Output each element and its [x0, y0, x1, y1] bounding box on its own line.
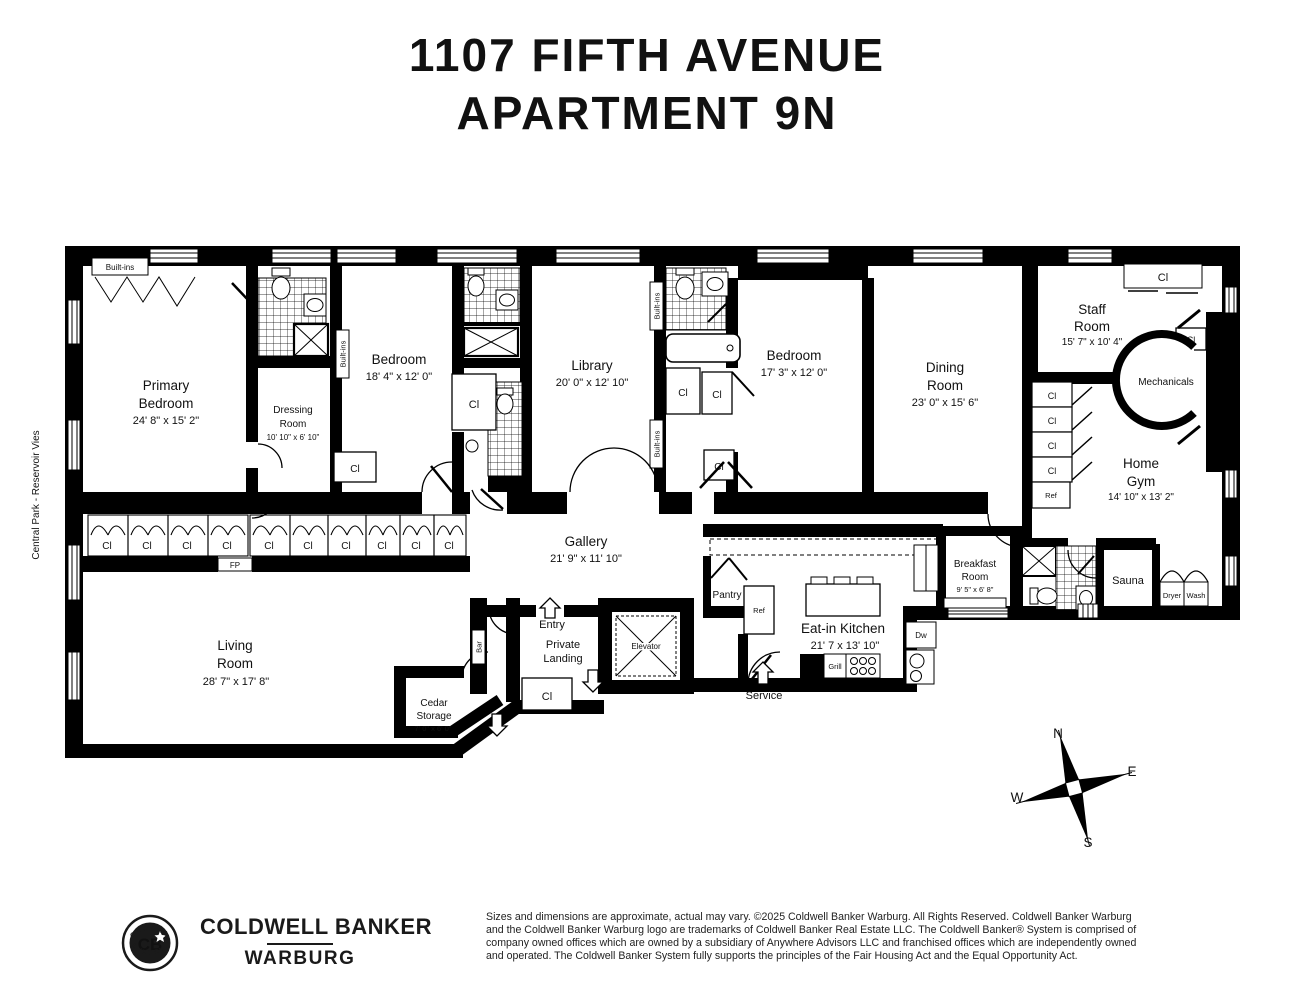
gallery-label: Gallery [565, 534, 608, 549]
floorplan-drawing: Cl Cl Cl Cl Cl Cl Cl Cl Cl Cl FP Cl Cl C… [0, 0, 1294, 1000]
dressing-room-dims: 10' 10" x 6' 10" [267, 433, 320, 442]
closet-label: Cl [341, 541, 350, 552]
compass-n-label: N [1053, 726, 1063, 741]
closet-label: Cl [678, 388, 687, 399]
breakfast-room-label: Breakfast [954, 559, 996, 570]
toilet-icon [272, 268, 290, 299]
closet-label: Cl [222, 541, 231, 552]
brand-line2: WARBURG [200, 948, 400, 970]
bar-nook: Bar [472, 630, 485, 664]
legal-disclaimer: Sizes and dimensions are approximate, ac… [486, 911, 1144, 963]
home-gym-label: Home [1123, 456, 1159, 471]
bedroom2-label: Bedroom [767, 348, 822, 363]
kitchen-dims: 21' 7 x 13' 10" [811, 640, 880, 652]
closet-label: Cl [712, 390, 721, 401]
ref-label: Ref [753, 606, 766, 615]
closet-label: Cl [1158, 272, 1168, 284]
toilet-icon [676, 268, 694, 299]
closet-label: Cl [264, 541, 273, 552]
breakfast-bench [944, 598, 1006, 608]
mechanicals-label: Mechanicals [1138, 377, 1194, 388]
closet-label: Cl [469, 399, 479, 411]
primary-bedroom-label: Bedroom [139, 396, 194, 411]
sink-icon [304, 294, 326, 316]
dressing-room-label: Room [280, 419, 307, 430]
sink-icon [496, 290, 518, 310]
kitchen-island [806, 577, 880, 616]
closet-label: Cl [102, 541, 111, 552]
kitchen-sink-icon [906, 650, 934, 684]
closet-label: Cl [350, 464, 359, 475]
dryer-label: Dryer [1163, 591, 1182, 600]
bedroom1-dims: 18' 4" x 12' 0" [366, 371, 433, 383]
ref-label: Ref [1045, 491, 1058, 500]
cedar-storage-label: Cedar [420, 698, 448, 709]
staff-room-dims: 15' 7" x 10' 4" [1062, 337, 1123, 348]
closet-label: Cl [1048, 391, 1057, 401]
cooktop-icon [846, 654, 880, 678]
dining-room-label: Room [927, 378, 963, 393]
refrigerator: Ref [744, 586, 774, 634]
built-ins-label: Built-ins [339, 340, 348, 367]
closet-label: Cl [444, 541, 453, 552]
toilet-icon [468, 268, 484, 296]
brand-divider [267, 943, 333, 945]
fireplace-label: FP [230, 561, 240, 570]
bedroom1-label: Bedroom [372, 352, 427, 367]
grill-label: Grill [828, 662, 842, 671]
elevator: Elevator [612, 612, 680, 680]
breakfast-room-dims: 9' 5" x 6' 8" [957, 585, 994, 594]
bathtub-icon [666, 334, 740, 362]
living-room-dims: 28' 7" x 17' 8" [203, 676, 270, 688]
closet-label: Cl [303, 541, 312, 552]
private-landing-label: Private [546, 639, 580, 651]
shower-icon [1022, 546, 1056, 576]
dishwasher: Dw [906, 622, 936, 648]
built-ins-label: Built-ins [653, 292, 662, 319]
primary-bedroom-label: Primary [143, 378, 190, 393]
dining-room-dims: 23' 0" x 15' 6" [912, 397, 979, 409]
dining-room-label: Dining [926, 360, 964, 375]
bar-label: Bar [475, 641, 484, 653]
library-label: Library [571, 358, 613, 373]
entry-label: Entry [539, 619, 565, 631]
living-room-label: Living [217, 638, 252, 653]
grill: Grill [824, 654, 846, 678]
toilet-icon [497, 388, 513, 414]
closet-label: Cl [542, 691, 552, 703]
floorplan-page: 1107 FIFTH AVENUE APARTMENT 9N [0, 0, 1294, 1000]
built-ins-label: Built-ins [106, 263, 134, 272]
laundry: Dryer Wash [1160, 571, 1208, 606]
sink-icon [702, 272, 728, 296]
gallery-dims: 21' 9" x 11' 10" [550, 553, 622, 565]
compass-s-label: S [1083, 835, 1092, 850]
dressing-room-label: Dressing [273, 405, 312, 416]
brand-wordmark: COLDWELL BANKER WARBURG [200, 914, 400, 970]
pantry-label: Pantry [713, 590, 742, 601]
sauna-step [1078, 604, 1098, 618]
staff-room-label: Staff [1078, 302, 1106, 317]
living-room-label: Room [217, 656, 253, 671]
closet-label: Cl [1048, 466, 1057, 476]
dw-label: Dw [915, 631, 927, 640]
brand-line1: COLDWELL BANKER [200, 914, 400, 940]
compass-e-label: E [1127, 764, 1136, 779]
built-ins-label: Built-ins [653, 430, 662, 457]
closet-label: Cl [1048, 441, 1057, 451]
library-dims: 20' 0" x 12' 10" [556, 377, 629, 389]
closet-label: Cl [182, 541, 191, 552]
home-gym-dims: 14' 10" x 13' 2" [1108, 492, 1174, 503]
bedroom2-dims: 17' 3" x 12' 0" [761, 367, 828, 379]
gym-closet-stack: Cl Cl Cl Cl Ref [1032, 382, 1092, 508]
shower-icon [464, 328, 518, 356]
closet-label: Cl [142, 541, 151, 552]
hall-bathroom-1 [464, 268, 522, 476]
cedar-storage-label: Storage [416, 711, 451, 722]
primary-bedroom-dims: 24' 8" x 15' 2" [133, 415, 200, 427]
closet-label: Cl [377, 541, 386, 552]
toilet-icon [1030, 588, 1057, 604]
staff-room-label: Room [1074, 319, 1110, 334]
breakfast-room-label: Room [962, 572, 989, 583]
home-gym-label: Gym [1127, 474, 1156, 489]
compass-w-label: W [1011, 790, 1024, 805]
cedar-storage-dims: 7' 0" x 6' 0" [415, 724, 452, 733]
shower-icon [294, 324, 328, 356]
wash-label: Wash [1187, 591, 1206, 600]
sauna-label: Sauna [1112, 575, 1145, 587]
elevator-label: Elevator [631, 642, 661, 651]
side-view-label: Central Park - Reservoir Vies [31, 430, 42, 559]
kitchen-label: Eat-in Kitchen [801, 621, 885, 636]
entry-arrow-icon [540, 598, 560, 618]
closet-label: Cl [1048, 416, 1057, 426]
closet-label: Cl [411, 541, 420, 552]
global-luxury-logo: CB GLOBAL LUXURY. [123, 916, 177, 970]
sink-icon [466, 440, 478, 452]
private-landing-label: Landing [543, 653, 582, 665]
service-label: Service [746, 690, 783, 702]
compass-rose: N E W S [1001, 715, 1148, 862]
